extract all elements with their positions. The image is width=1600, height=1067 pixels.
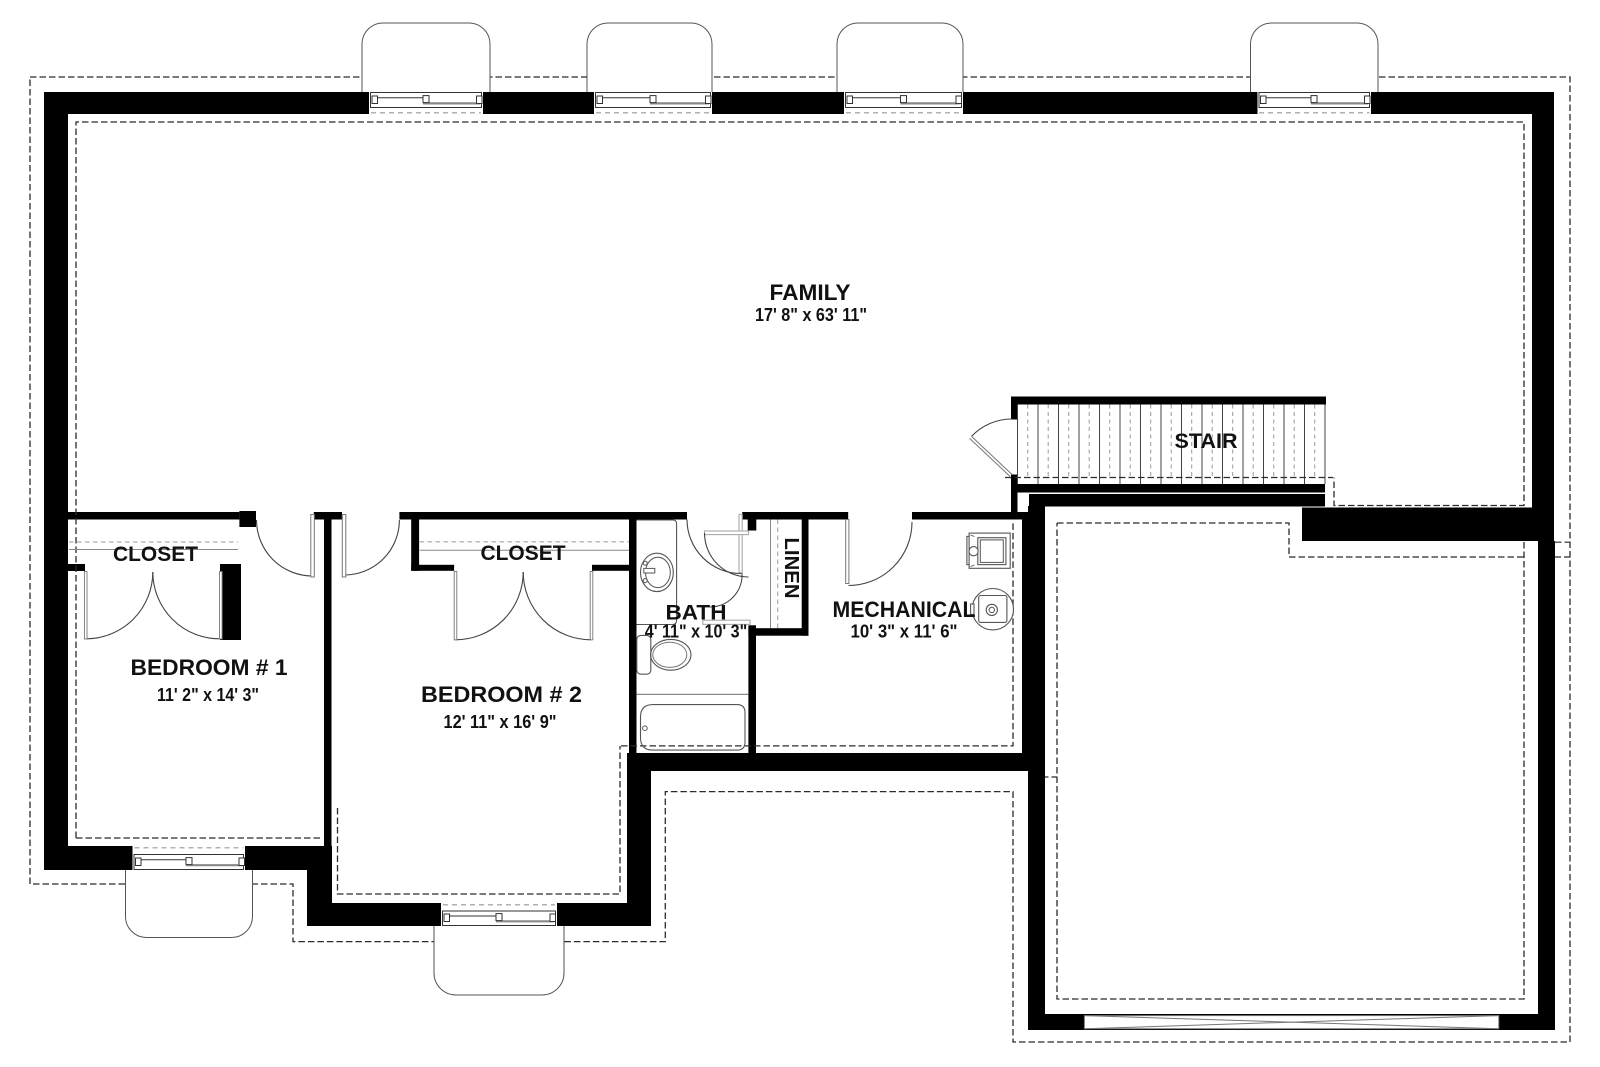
svg-text:CLOSET: CLOSET bbox=[481, 541, 566, 565]
svg-text:MECHANICAL: MECHANICAL bbox=[833, 597, 976, 622]
svg-text:4' 11" x 10' 3": 4' 11" x 10' 3" bbox=[645, 622, 748, 642]
svg-text:LINEN: LINEN bbox=[780, 538, 802, 599]
svg-text:BEDROOM # 2: BEDROOM # 2 bbox=[421, 682, 582, 707]
svg-text:10' 3" x 11' 6": 10' 3" x 11' 6" bbox=[851, 622, 958, 642]
svg-text:12' 11" x 16' 9": 12' 11" x 16' 9" bbox=[444, 712, 557, 732]
svg-text:FAMILY: FAMILY bbox=[770, 280, 851, 305]
svg-text:CLOSET: CLOSET bbox=[113, 542, 198, 566]
svg-text:STAIR: STAIR bbox=[1175, 429, 1238, 453]
svg-text:BEDROOM # 1: BEDROOM # 1 bbox=[131, 655, 288, 680]
svg-text:11' 2" x 14' 3": 11' 2" x 14' 3" bbox=[157, 685, 259, 705]
svg-text:17' 8" x 63' 11": 17' 8" x 63' 11" bbox=[755, 305, 867, 325]
